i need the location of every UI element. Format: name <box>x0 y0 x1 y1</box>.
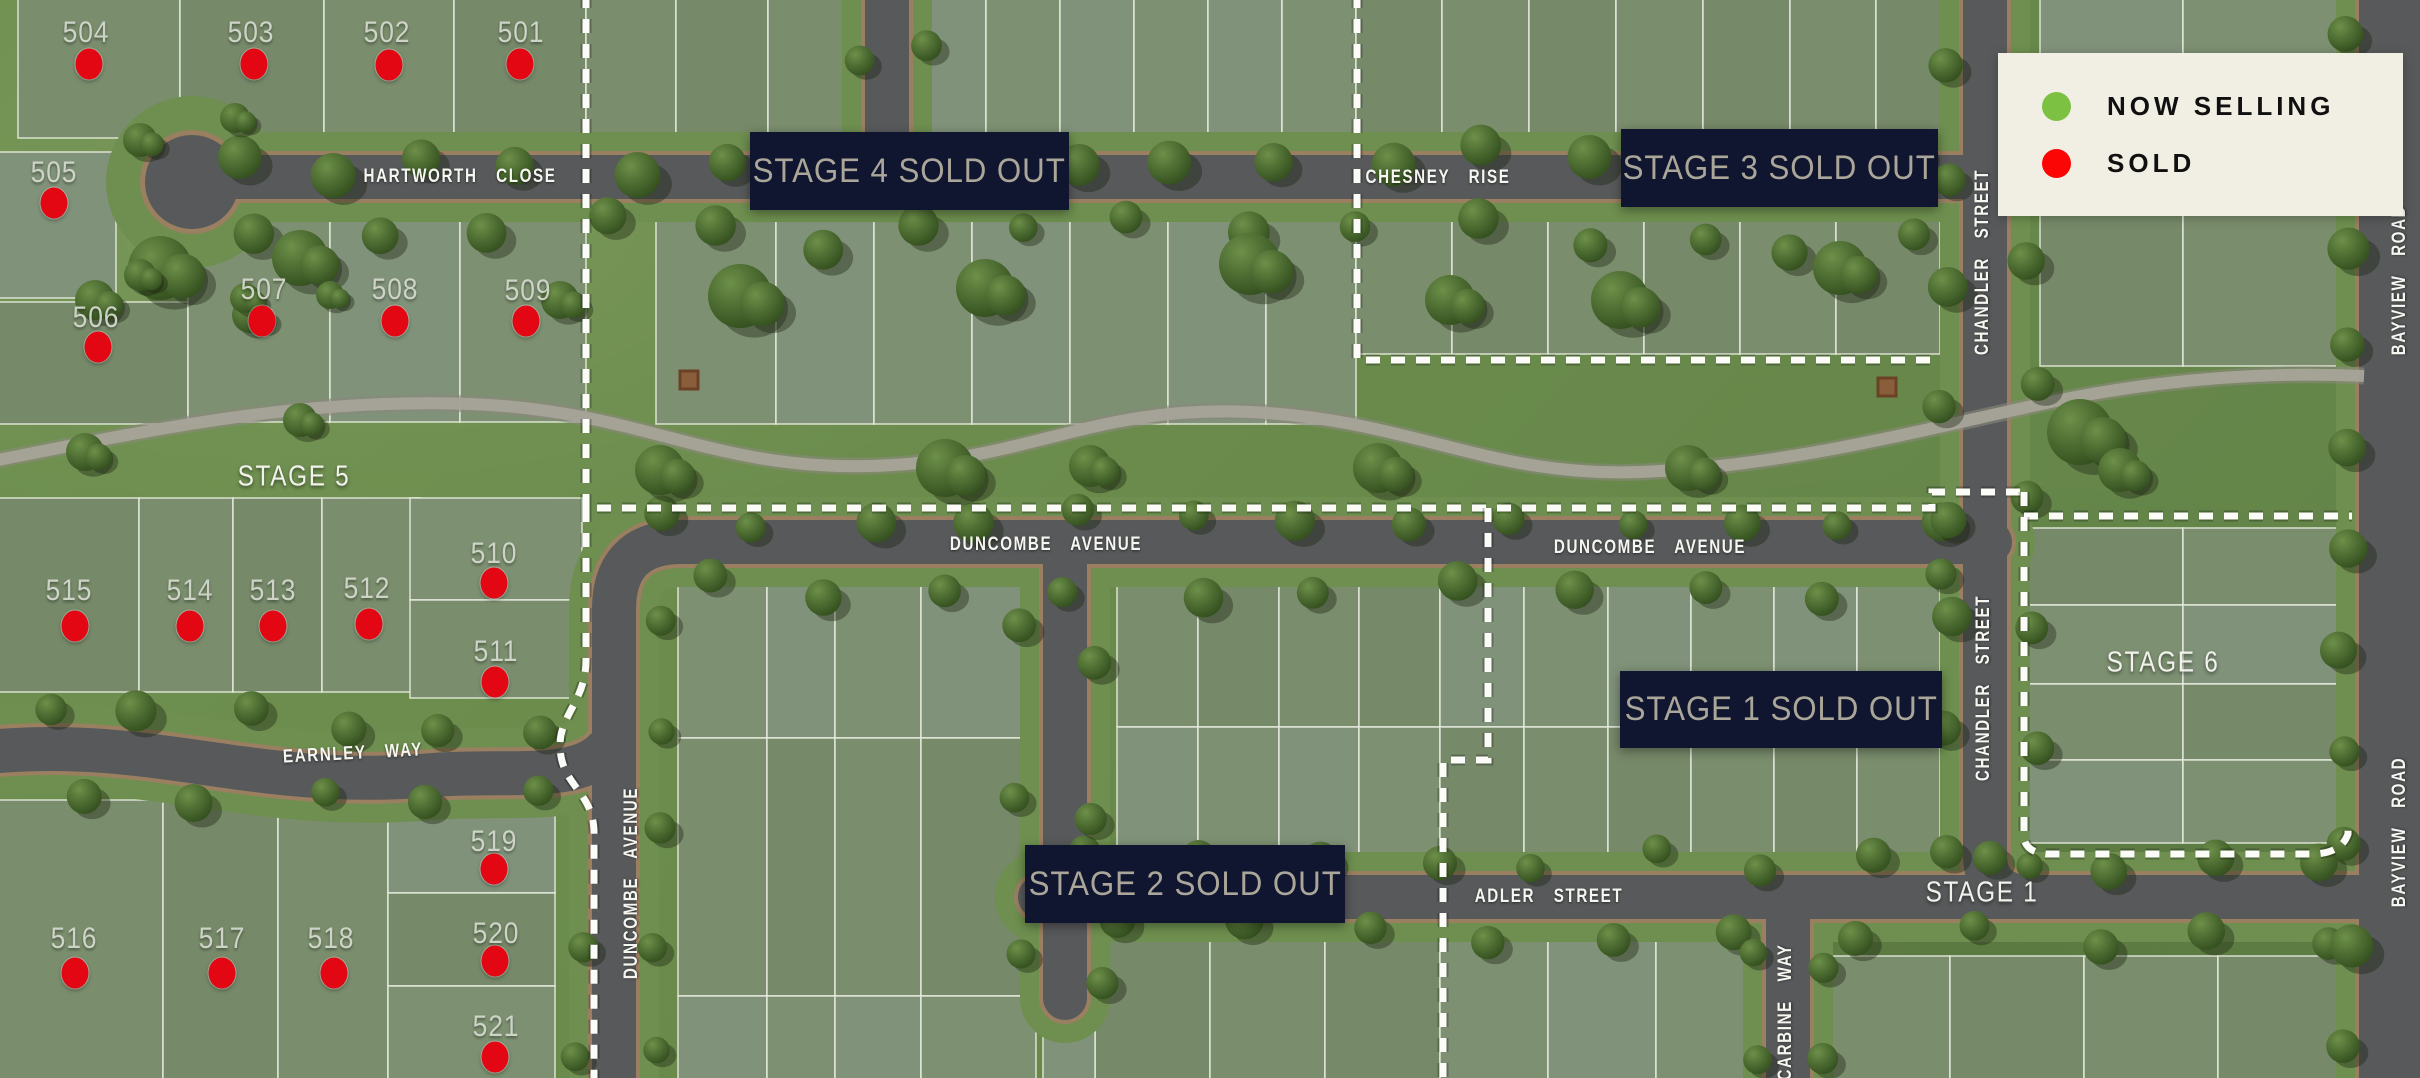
street-label: CARBINE WAY <box>1775 943 1797 1078</box>
lot-number: 502 <box>364 16 411 50</box>
lot-number: 510 <box>471 537 518 571</box>
lot-status-dot-519 <box>481 854 508 885</box>
lot-number: 521 <box>473 1010 520 1044</box>
stage-banner: STAGE 3 SOLD OUT <box>1621 129 1938 207</box>
lot-status-dot-503 <box>241 49 268 80</box>
stage-banner-label: STAGE 2 SOLD OUT <box>1028 865 1341 904</box>
lot-number: 513 <box>250 574 297 608</box>
lot-status-dot-505 <box>41 188 68 219</box>
lot-status-dot-509 <box>513 306 540 337</box>
lot-status-dot-514 <box>177 611 204 642</box>
masterplan-map[interactable]: HARTWORTH CLOSECHESNEY RISEDUNCOMBE AVEN… <box>0 0 2420 1078</box>
street-label: BAYVIEW ROAD <box>2389 757 2411 908</box>
lot-number: 504 <box>63 16 110 50</box>
lot-status-dot-501 <box>507 49 534 80</box>
lot-status-dot-518 <box>321 958 348 989</box>
lot-number: 505 <box>31 156 78 190</box>
lot-number: 508 <box>372 273 419 307</box>
street-label: EARNLEY WAY <box>282 739 423 768</box>
lot-status-dot-507 <box>249 306 276 337</box>
legend-item-sold: SOLD <box>2042 148 2403 179</box>
lot-status-dot-504 <box>76 49 103 80</box>
lot-number: 515 <box>46 574 93 608</box>
lot-status-dot-516 <box>62 958 89 989</box>
legend: NOW SELLING SOLD <box>1998 53 2403 216</box>
now-selling-dot-icon <box>2042 92 2071 121</box>
lot-number: 516 <box>51 922 98 956</box>
street-label: BAYVIEW ROAD <box>2389 205 2411 356</box>
legend-item-now-selling: NOW SELLING <box>2042 91 2403 122</box>
street-label: DUNCOMBE AVENUE <box>950 534 1142 556</box>
stage-banner-label: STAGE 4 SOLD OUT <box>753 152 1066 191</box>
stage-banner: STAGE 1 SOLD OUT <box>1620 671 1942 748</box>
lot-status-dot-508 <box>382 306 409 337</box>
street-label: CHESNEY RISE <box>1366 167 1511 189</box>
lot-status-dot-512 <box>356 609 383 640</box>
lot-number: 501 <box>498 16 545 50</box>
stage-area-label: STAGE 5 <box>238 461 351 494</box>
stage-banner-label: STAGE 3 SOLD OUT <box>1623 149 1936 188</box>
street-label: ADLER STREET <box>1475 886 1624 908</box>
lot-number: 518 <box>308 922 355 956</box>
street-label: DUNCOMBE AVENUE <box>621 787 643 979</box>
street-label: DUNCOMBE AVENUE <box>1554 537 1746 559</box>
lot-status-dot-520 <box>482 946 509 977</box>
lot-number: 512 <box>344 572 391 606</box>
street-label: HARTWORTH CLOSE <box>363 166 556 188</box>
lot-status-dot-521 <box>482 1042 509 1073</box>
stage-banner: STAGE 2 SOLD OUT <box>1025 845 1345 923</box>
stage-area-label: STAGE 6 <box>2107 647 2220 680</box>
legend-label: SOLD <box>2107 148 2195 179</box>
lot-number: 514 <box>167 574 214 608</box>
lot-status-dot-513 <box>260 611 287 642</box>
lot-number: 506 <box>73 301 120 335</box>
stage-area-label: STAGE 1 <box>1926 877 2039 910</box>
lot-number: 507 <box>241 273 288 307</box>
lot-number: 503 <box>228 16 275 50</box>
lot-status-dot-515 <box>62 611 89 642</box>
lot-status-dot-511 <box>482 667 509 698</box>
lot-status-dot-502 <box>376 50 403 81</box>
lot-status-dot-506 <box>85 332 112 363</box>
stage-banner-label: STAGE 1 SOLD OUT <box>1624 690 1937 729</box>
sold-dot-icon <box>2042 149 2071 178</box>
lot-status-dot-510 <box>481 568 508 599</box>
street-label: CHANDLER STREET <box>1972 169 1994 355</box>
legend-label: NOW SELLING <box>2107 91 2334 122</box>
lot-number: 509 <box>505 274 552 308</box>
lot-number: 511 <box>474 635 519 669</box>
lot-status-dot-517 <box>209 958 236 989</box>
street-label: CHANDLER STREET <box>1973 595 1995 781</box>
stage-banner: STAGE 4 SOLD OUT <box>750 132 1069 210</box>
lot-number: 517 <box>199 922 246 956</box>
